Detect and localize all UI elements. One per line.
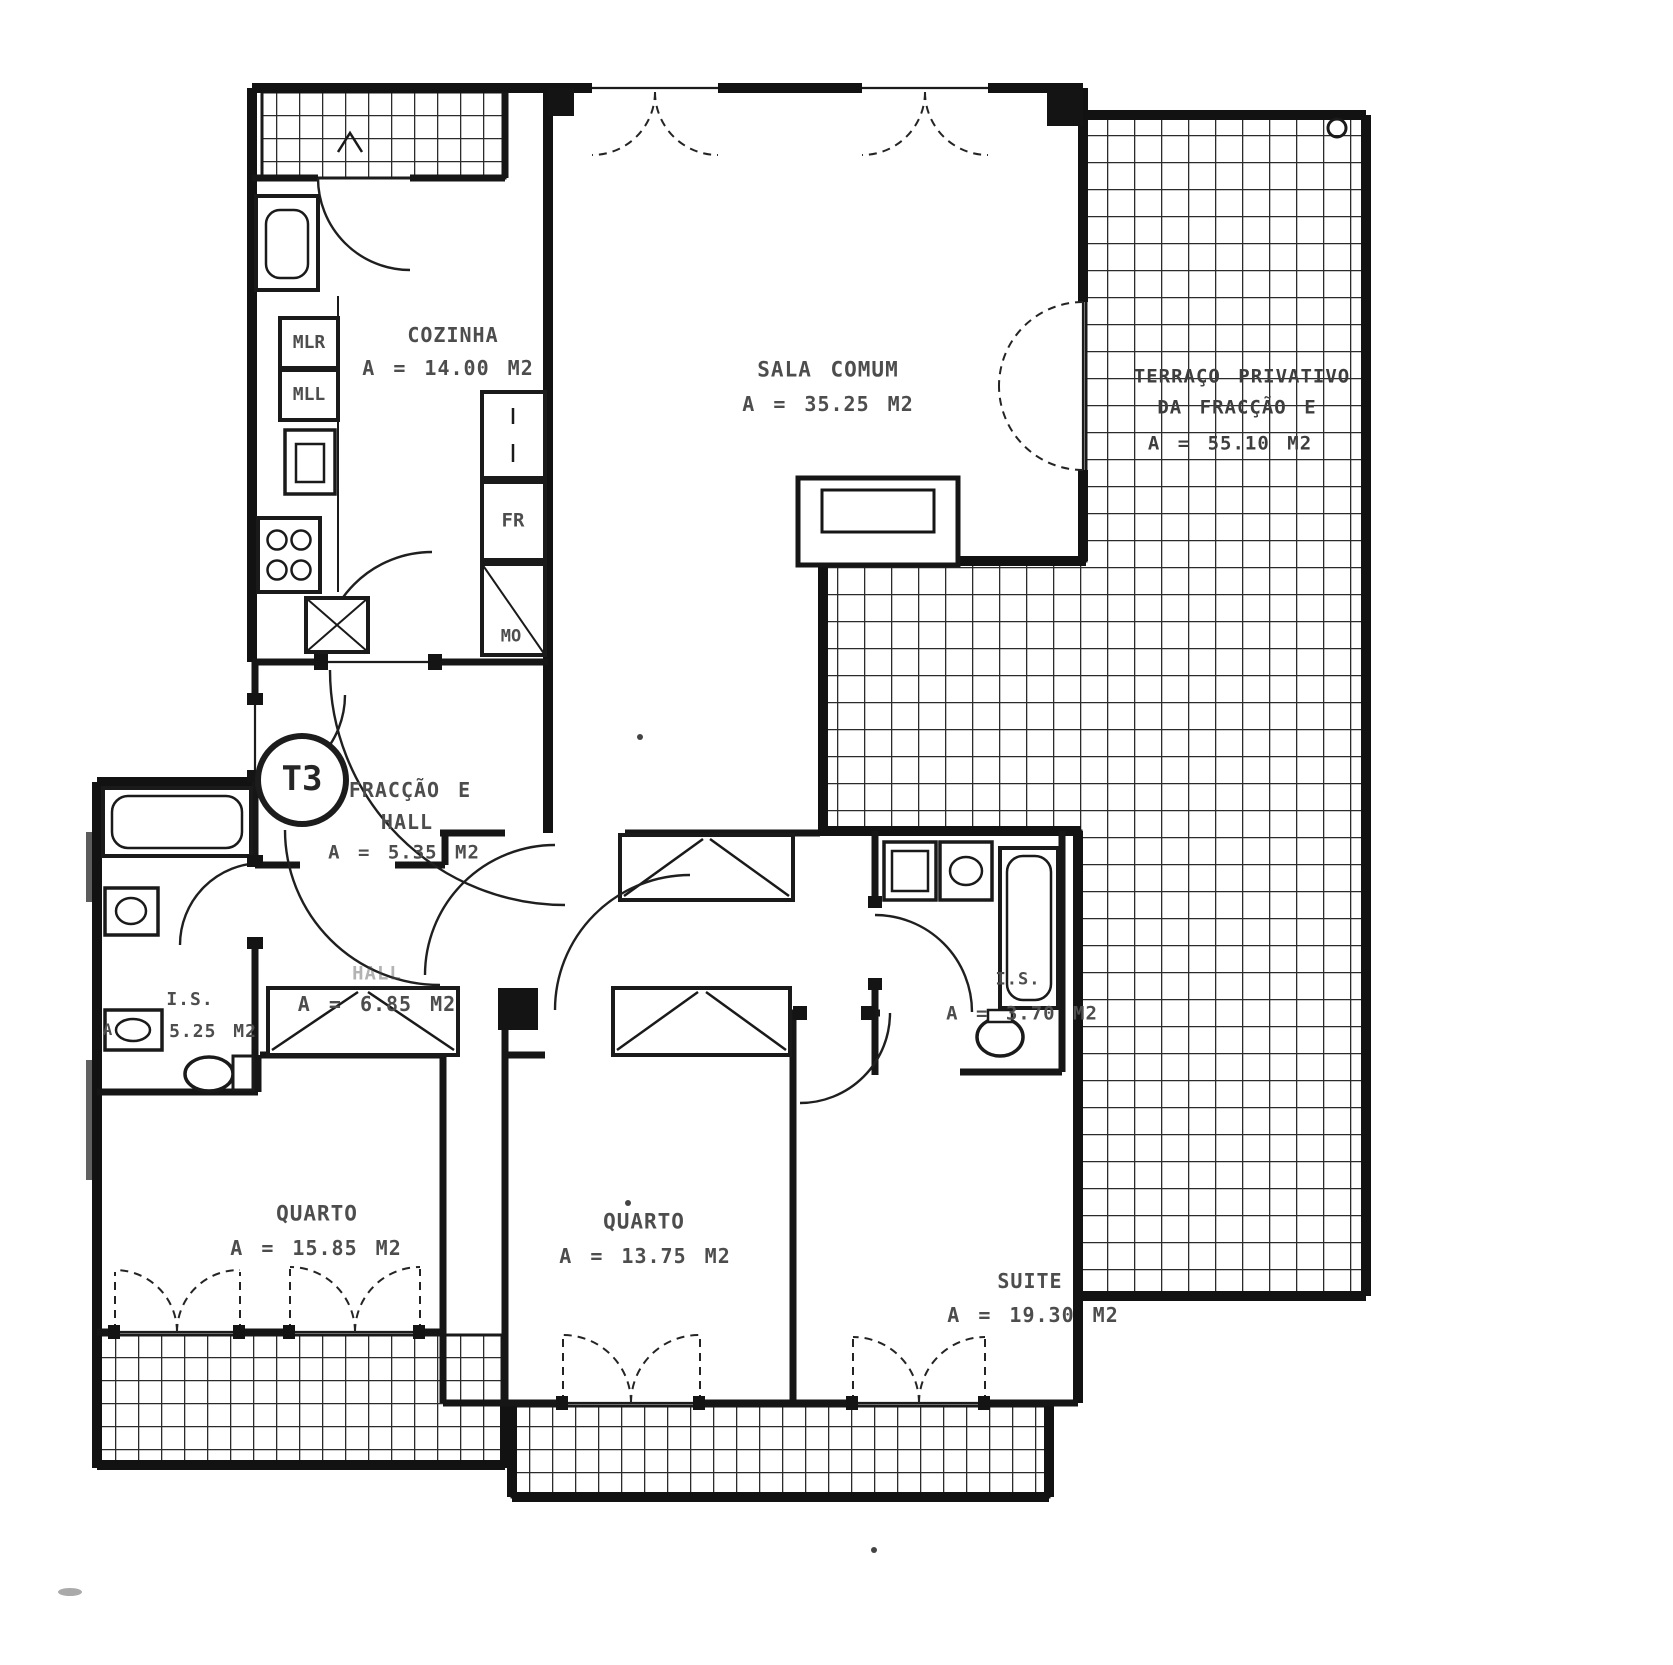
room-area-cozinha: A = 14.00 M2 xyxy=(362,358,534,378)
stove xyxy=(258,518,320,592)
kitchen-cabinet xyxy=(482,392,545,478)
room-label-terraco-line1: TERRAÇO PRIVATIVO xyxy=(1134,368,1350,387)
kitchen-balcony-tiles xyxy=(262,92,505,178)
room-area-prefix-is-left: A xyxy=(103,1022,114,1038)
room-label-hall: HALL xyxy=(352,965,402,984)
room-area-sala-comum: A = 35.25 M2 xyxy=(742,394,914,414)
hall-column xyxy=(498,988,538,1030)
room-label-fraccao-line2: HALL xyxy=(381,812,433,832)
room-label-cozinha: COZINHA xyxy=(407,325,498,345)
fireplace xyxy=(798,478,958,565)
room-label-quarto2: QUARTO xyxy=(603,1212,685,1233)
bathroom-left-fixtures xyxy=(103,788,253,1091)
appliance-label-mlr: MLR xyxy=(293,334,326,352)
bottom-middle-balcony-tiles xyxy=(512,1406,1049,1497)
room-area-quarto1: A = 15.85 M2 xyxy=(230,1238,402,1258)
appliance-label-fr: FR xyxy=(502,512,525,531)
room-label-quarto1: QUARTO xyxy=(276,1204,358,1225)
room-label-terraco-line2: DA FRACÇÃO E xyxy=(1157,399,1316,418)
room-label-suite: SUITE xyxy=(997,1271,1062,1291)
closets xyxy=(268,835,793,1055)
kitchen-fixtures xyxy=(256,196,545,655)
terrace-tiles xyxy=(823,115,1363,1293)
room-label-is-left: I.S. xyxy=(166,991,213,1009)
room-area-quarto2: A = 13.75 M2 xyxy=(559,1246,731,1266)
appliance-label-mll: MLL xyxy=(293,386,326,404)
room-area-fraccao-hall: A = 5.35 M2 xyxy=(328,844,480,863)
floorplan-drawing xyxy=(0,0,1673,1665)
room-area-terraco: A = 55.10 M2 xyxy=(1148,435,1312,454)
room-label-sala-comum: SALA COMUM xyxy=(757,360,898,381)
room-label-is-right: I.S. xyxy=(996,972,1041,989)
room-area-suite: A = 19.30 M2 xyxy=(947,1305,1119,1325)
appliance-label-mo: MO xyxy=(501,629,521,646)
floor-plan: T3 COZINHA A = 14.00 M2 SALA COMUM A = 3… xyxy=(0,0,1673,1665)
toilet xyxy=(185,1057,233,1091)
room-label-fraccao-line1: FRACÇÃO E xyxy=(349,780,471,800)
room-area-hall: A = 6.85 M2 xyxy=(298,994,456,1014)
room-area-is-right: A = 3.70 M2 xyxy=(946,1005,1098,1024)
unit-badge: T3 xyxy=(282,762,323,796)
room-area-is-left: 5.25 M2 xyxy=(169,1023,257,1041)
